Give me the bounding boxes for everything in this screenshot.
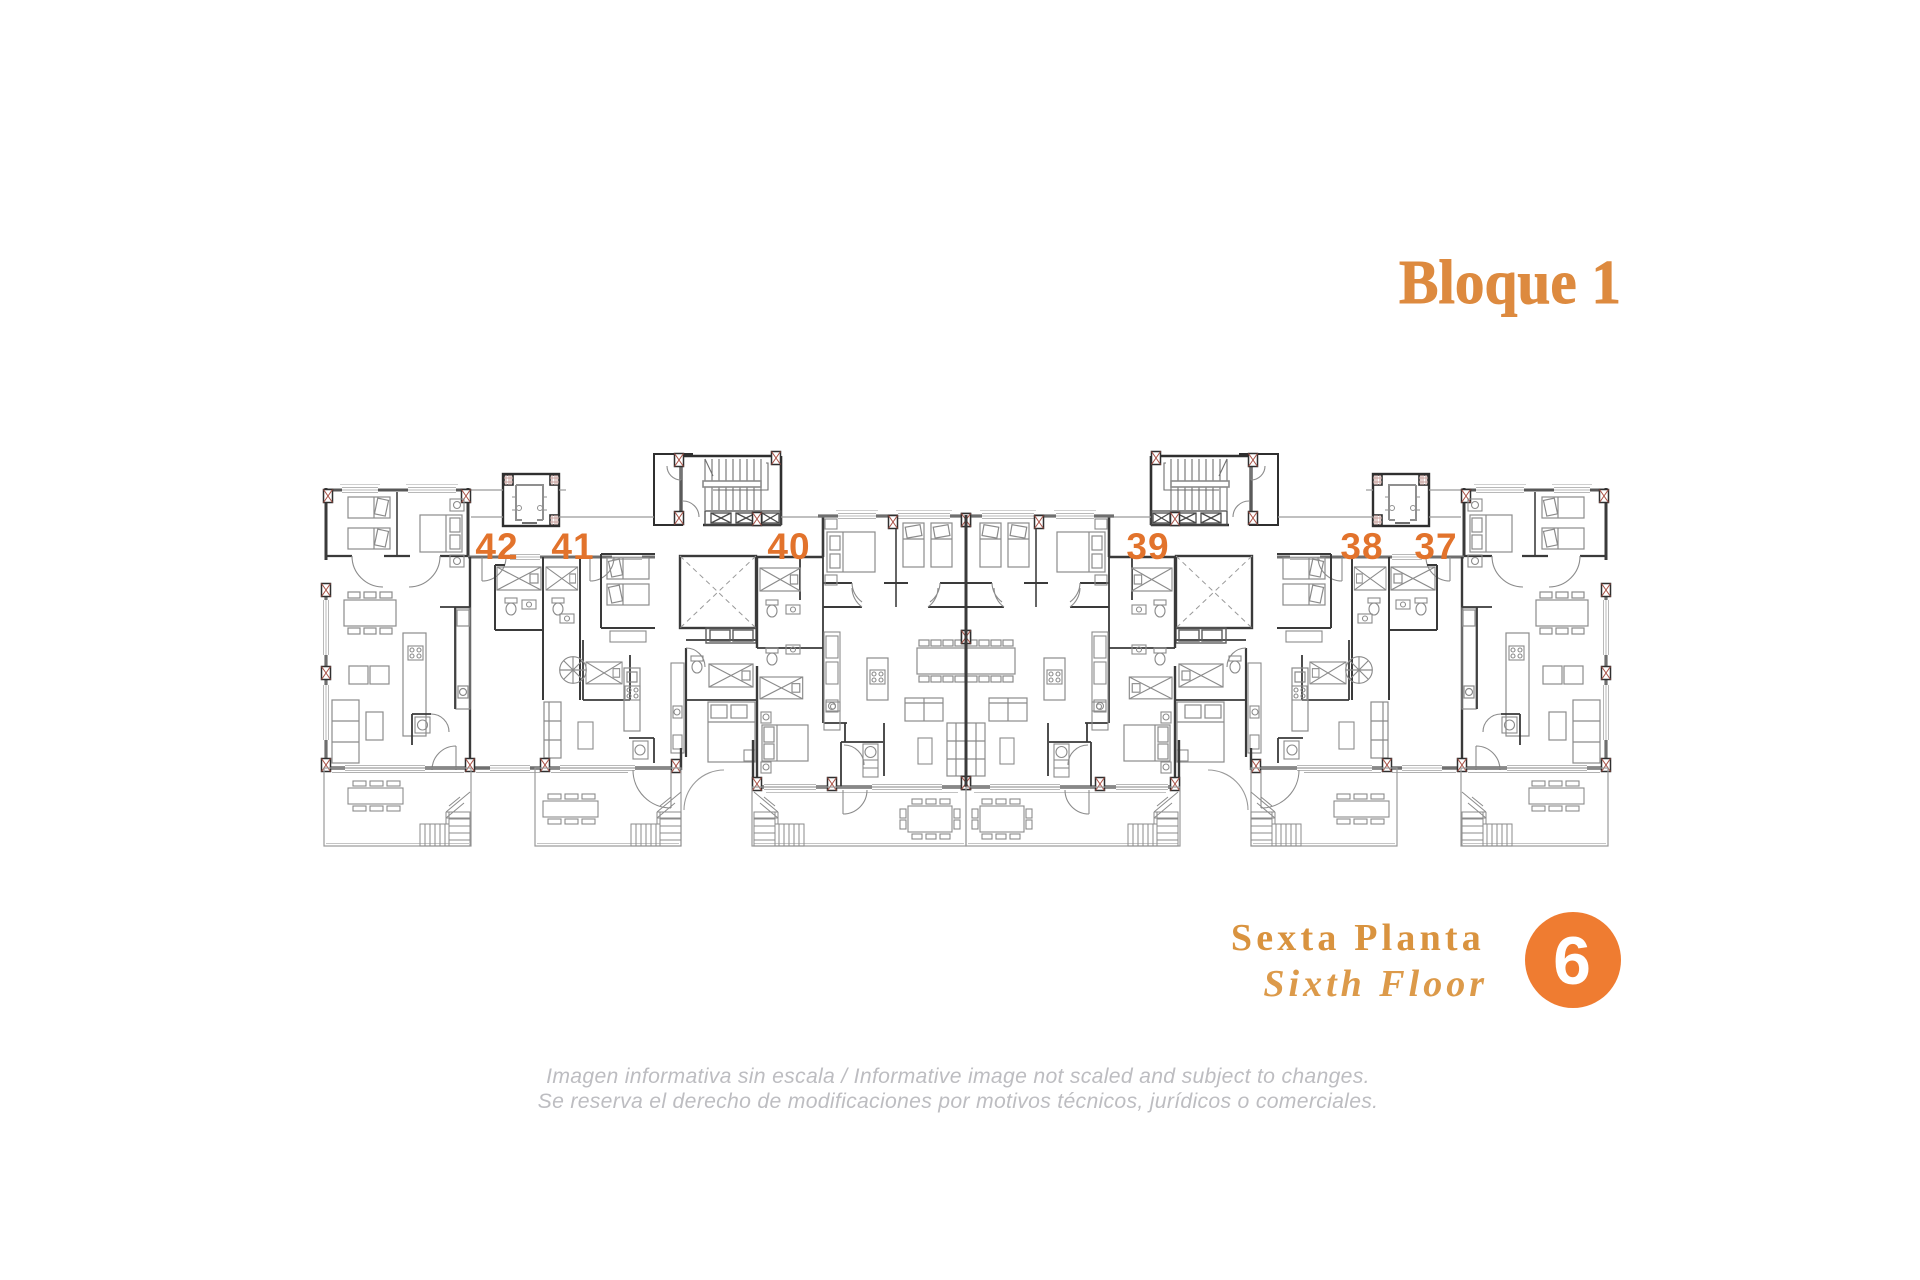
svg-text:Imagen informativa sin escala: Imagen informativa sin escala / Informat… [546, 1065, 1370, 1088]
svg-text:41: 41 [551, 526, 594, 567]
svg-text:40: 40 [767, 526, 810, 567]
svg-text:37: 37 [1414, 526, 1457, 567]
svg-text:6: 6 [1553, 923, 1591, 999]
svg-text:Sexta Planta: Sexta Planta [1231, 917, 1485, 959]
svg-text:42: 42 [475, 526, 518, 567]
svg-text:39: 39 [1126, 526, 1169, 567]
svg-text:Sixth Floor: Sixth Floor [1263, 963, 1488, 1005]
svg-text:Bloque 1: Bloque 1 [1399, 249, 1621, 317]
svg-text:Se reserva el derecho de modif: Se reserva el derecho de modificaciones … [538, 1090, 1379, 1113]
svg-text:38: 38 [1340, 526, 1383, 567]
